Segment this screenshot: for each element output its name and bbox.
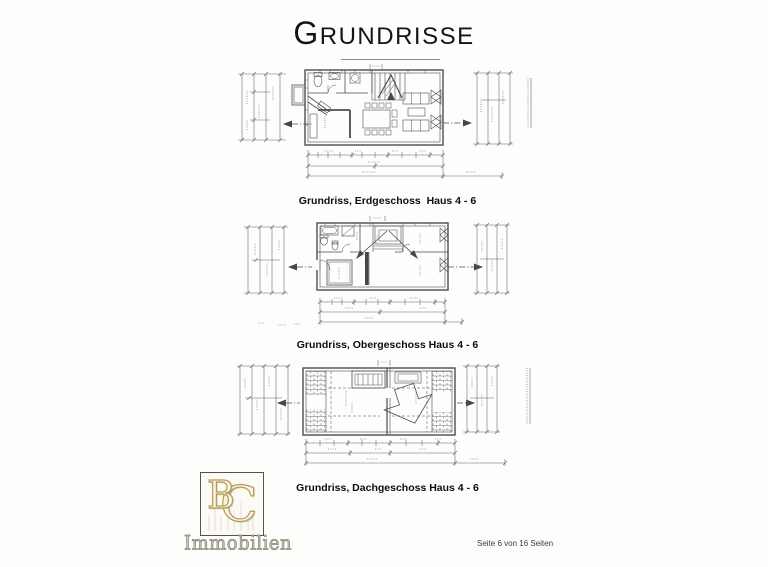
entry-porch [292,85,305,105]
page-title: GRUNDRISSE [0,16,768,57]
floorplan-caption-erdgeschoss: Grundriss, Erdgeschoss Haus 4 - 6 [230,195,545,207]
dimension-marks-top [370,64,382,69]
dimension-chain-left [244,225,288,295]
kitchen-counter [310,101,331,138]
scan-marks [258,323,300,325]
dimension-chain-right [463,364,500,434]
staircase [372,73,405,100]
floorplan-drawing-erdgeschoss [230,60,545,182]
dimension-chain-right [473,223,510,295]
roof-hatching [306,371,452,432]
entrance-arrow-left [283,121,312,128]
ceiling-height-lines [328,388,430,416]
dimension-chain-left [237,364,290,436]
dimension-marks-top [370,216,385,221]
page-number: Seite 6 von 16 Seiten [477,539,553,548]
floorplan-caption-obergeschoss: Grundriss, Obergeschoss Haus 4 - 6 [230,339,545,351]
floorplan-drawing-obergeschoss [230,215,545,335]
dining-table-and-chairs [363,103,397,135]
entrance-arrow-right [443,120,472,127]
wc-fixtures [314,73,360,87]
page-title-rest: RUNDRISSE [320,23,475,50]
company-logo: B C [200,472,264,536]
logo-subtitle: Immobilien [184,534,280,553]
dimension-chain-right [473,71,513,146]
window-door-symbols [431,90,441,129]
document-page: GRUNDRISSE [0,0,768,567]
floorplan-drawing-dachgeschoss [230,358,545,476]
window-door-symbols [440,228,448,272]
dimension-rows-bottom [318,298,464,325]
dimension-rows-bottom [306,150,504,179]
staircase [352,371,385,388]
closet-room [327,260,352,285]
bathroom-fixtures [320,226,354,250]
stair-direction-arrow [379,379,438,431]
sofa-group [403,93,429,131]
room-labels [346,390,416,412]
logo-letter-b: B [207,476,235,514]
entrance-arrow-right [448,264,483,271]
margin-note-vertical [528,78,531,128]
dimension-rows-bottom [304,439,507,466]
dimension-chain-left [238,72,286,142]
entrance-arrow-left [288,264,312,271]
outer-walls [305,70,443,145]
entrance-arrow-left [277,400,300,407]
dimension-marks-top [378,360,390,366]
margin-note-vertical [527,368,530,424]
page-title-initial: G [293,15,319,51]
interior-walls [308,70,372,138]
interior-walls [317,223,448,285]
floorplan-caption-dachgeschoss: Grundriss, Dachgeschoss Haus 4 - 6 [230,482,545,494]
entrance-arrow-right [457,400,475,407]
